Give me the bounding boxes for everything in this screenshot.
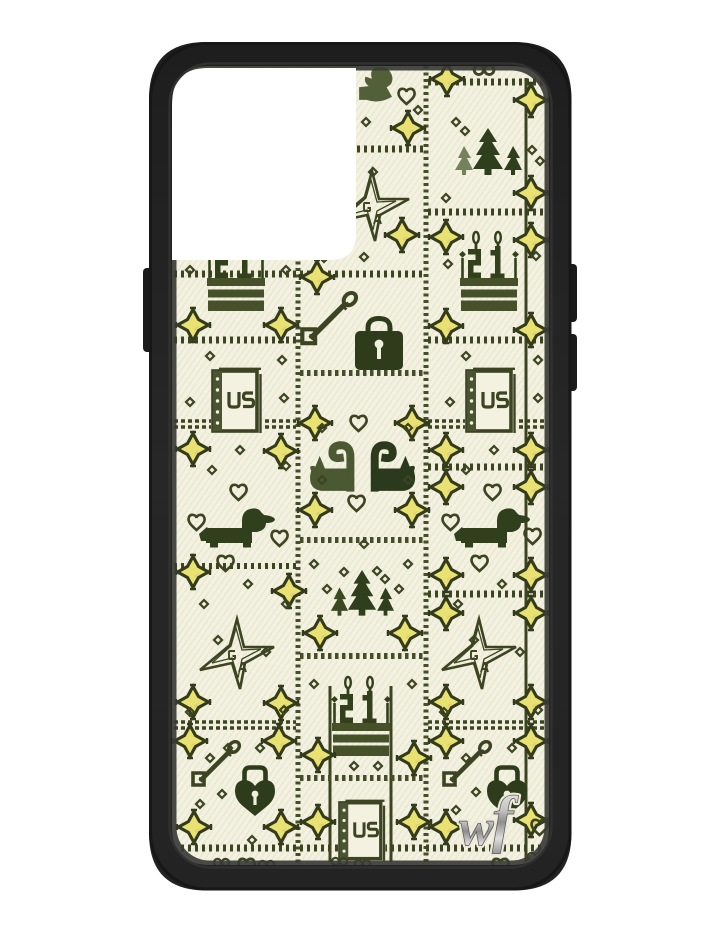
svg-text:w: w — [459, 800, 494, 857]
